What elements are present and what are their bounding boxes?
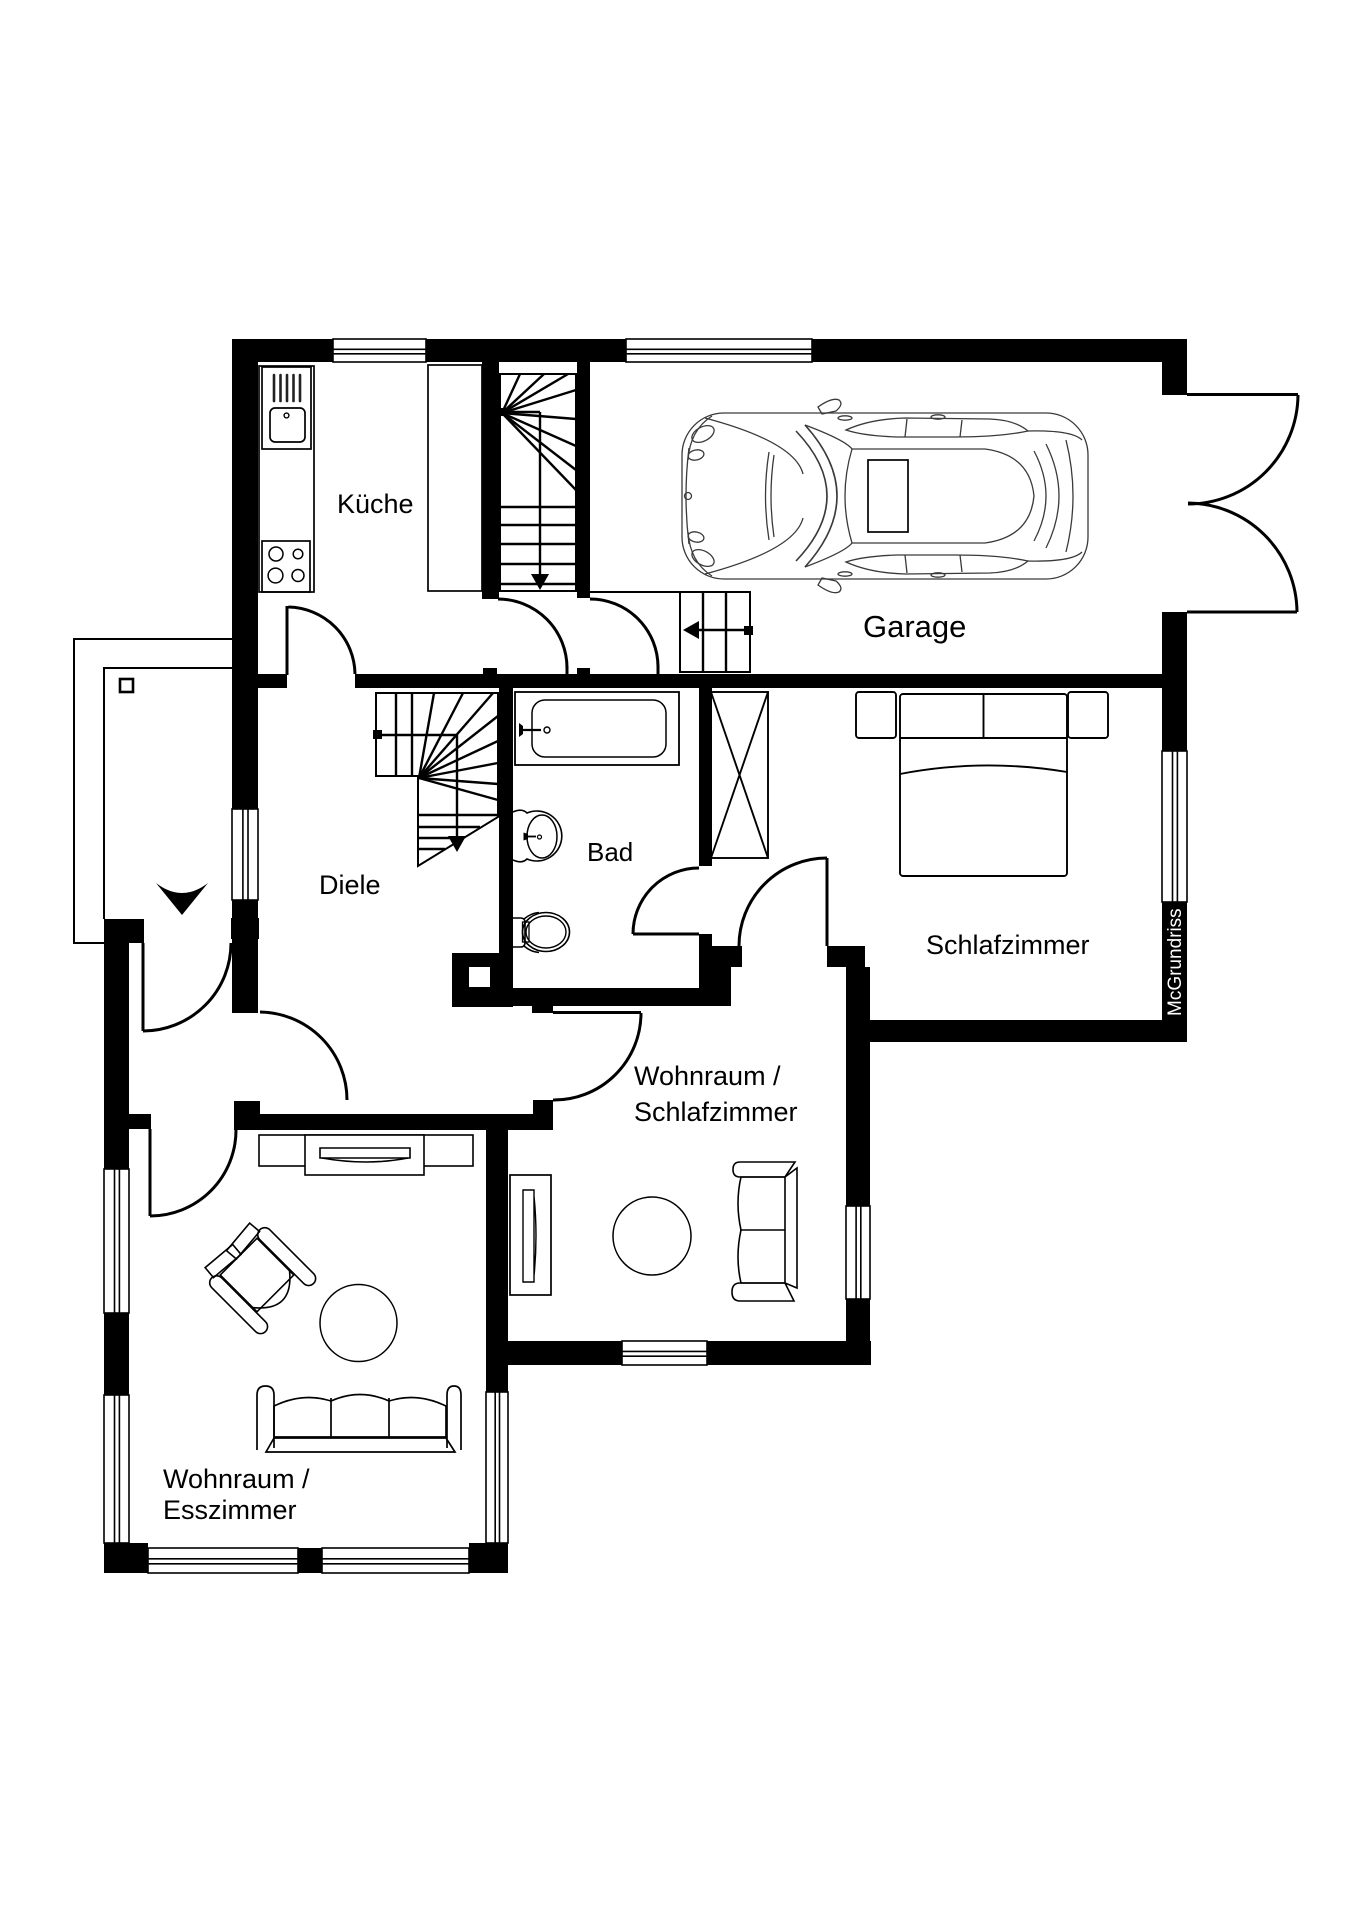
svg-text:McGrundriss: McGrundriss: [1165, 908, 1186, 1016]
svg-text:Esszimmer: Esszimmer: [163, 1495, 297, 1525]
svg-text:Garage: Garage: [863, 609, 966, 644]
svg-text:Schlafzimmer: Schlafzimmer: [926, 930, 1090, 960]
svg-text:Wohnraum /: Wohnraum /: [634, 1061, 781, 1091]
svg-text:Wohnraum /: Wohnraum /: [163, 1464, 310, 1494]
svg-text:Diele: Diele: [319, 870, 381, 900]
svg-text:Küche: Küche: [337, 489, 414, 519]
svg-text:Bad: Bad: [587, 837, 633, 867]
svg-text:Schlafzimmer: Schlafzimmer: [634, 1097, 798, 1127]
